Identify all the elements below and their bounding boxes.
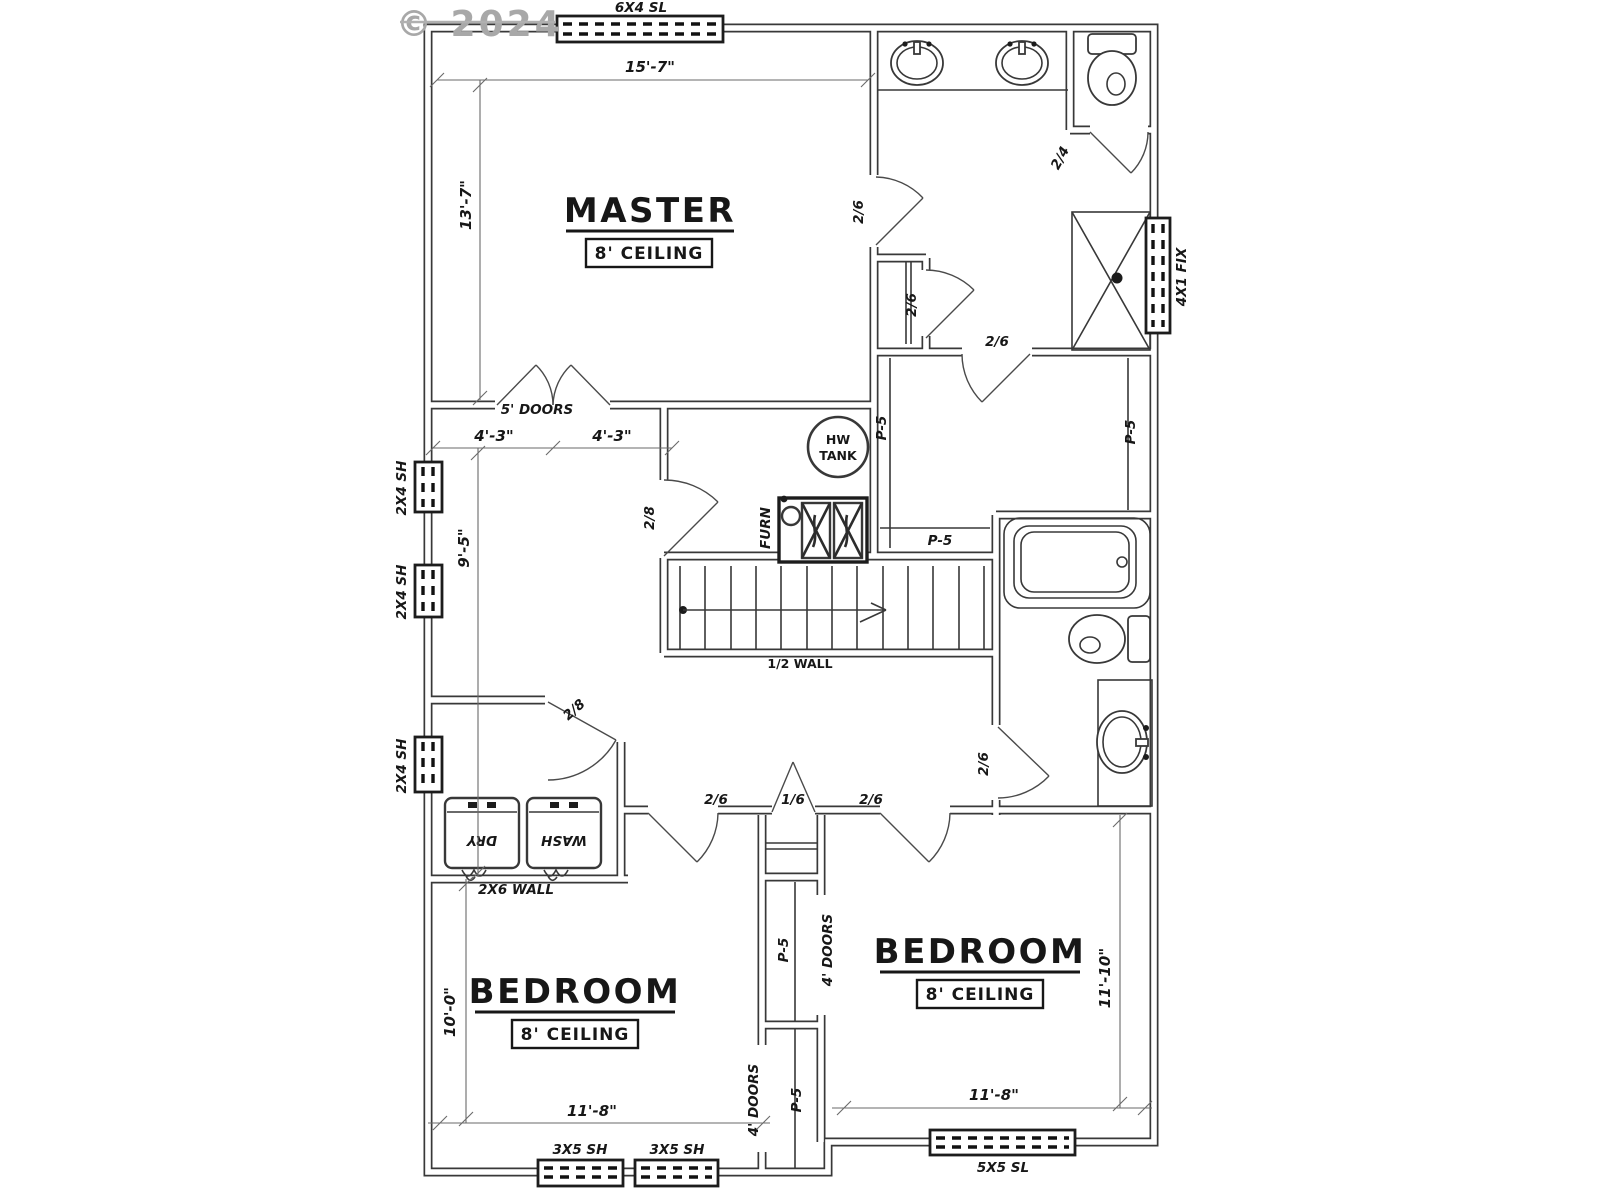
ceiling-note: 8' CEILING — [521, 1025, 630, 1045]
door-label-bedroom1: 2/6 — [704, 792, 728, 808]
dim-hall-height: 9'-5" — [455, 528, 473, 568]
window-left-sh3: 2X4 SH — [394, 737, 442, 793]
window-label: 6X4 SL — [615, 0, 667, 16]
window-left-sh2: 2X4 SH — [394, 564, 442, 620]
dim-hall-a: 4'-3" — [473, 427, 514, 445]
door-label-mech: 2/8 — [642, 506, 658, 530]
furnace — [779, 496, 867, 562]
dryer: DRY — [445, 798, 519, 880]
window-label: 2X4 SH — [394, 564, 410, 620]
toilet-bowl — [1088, 51, 1136, 105]
faucet-icon — [914, 42, 920, 54]
copyright-watermark: © 2024 — [396, 4, 563, 45]
window-label: 2X4 SH — [394, 460, 410, 516]
dim-master-width: 15'-7" — [625, 58, 675, 76]
door-label-bedroom2: 2/6 — [859, 792, 883, 808]
toilet-tank — [1128, 616, 1150, 662]
door-label-master-french: 5' DOORS — [501, 402, 574, 418]
room-name: BEDROOM — [469, 972, 682, 1012]
dim-bed2-width: 11'-8" — [969, 1086, 1019, 1104]
paper-background — [0, 0, 1600, 1200]
bath2-toilet — [1069, 615, 1150, 663]
dim-master-height: 13'-7" — [457, 180, 475, 230]
ceiling-note: 8' CEILING — [595, 244, 704, 264]
washer-label: WASH — [540, 832, 587, 848]
hw-tank: HW TANK — [808, 417, 868, 477]
ceiling-note: 8' CEILING — [926, 985, 1035, 1005]
hw-tank-label-1: HW — [826, 432, 850, 447]
watermark-text: © 2024 — [396, 4, 563, 45]
floor-plan-page: 1/2 WALL HW TANK — [0, 0, 1600, 1200]
window-left-sh1: 2X4 SH — [394, 460, 442, 516]
window-label: 3X5 SH — [553, 1142, 609, 1158]
window-label: 4X1 FIX — [1174, 247, 1190, 307]
floor-plan: 1/2 WALL HW TANK — [0, 0, 1600, 1200]
dim-bed1-height: 10'-0" — [441, 987, 459, 1037]
half-wall-label: 1/2 WALL — [767, 656, 832, 671]
pole-shelf-closet-upper: P-5 — [776, 938, 792, 963]
dryer-label: DRY — [466, 832, 497, 848]
door-label-bath2: 2/6 — [976, 752, 992, 776]
furnace-label: FURN — [758, 506, 774, 549]
master-room-title: MASTER 8' CEILING — [564, 191, 736, 267]
furnace-pipe-icon — [782, 507, 800, 525]
washer: WASH — [527, 798, 601, 880]
door-label-master-closet: 2/6 — [904, 293, 920, 317]
dim-bed2-height: 11'-10" — [1096, 948, 1114, 1008]
pole-shelf-closet-lower: P-5 — [789, 1088, 805, 1113]
pole-shelf-wic-back: P-5 — [928, 533, 953, 549]
door-label-closet-bed1: 4' DOORS — [746, 1064, 762, 1138]
toilet-room-toilet — [1088, 34, 1136, 105]
hw-tank-label-2: TANK — [819, 448, 858, 463]
shower-head-icon — [1112, 273, 1123, 284]
dim-hall-b: 4'-3" — [591, 427, 632, 445]
door-label-closet-bed2: 4' DOORS — [820, 914, 836, 988]
door-label-linen: 1/6 — [781, 792, 805, 808]
door-label-wic: 2/6 — [985, 334, 1009, 350]
room-name: MASTER — [564, 191, 736, 231]
window-label: 2X4 SH — [394, 738, 410, 794]
pole-shelf-wic-right: P-5 — [1123, 420, 1139, 445]
faucet-icon — [1019, 42, 1025, 54]
wall-2x6-label: 2X6 WALL — [478, 882, 554, 898]
pole-shelf-wic-left: P-5 — [874, 416, 890, 441]
faucet-icon — [1136, 739, 1148, 746]
door-label-master-bath: 2/6 — [851, 200, 867, 224]
room-name: BEDROOM — [874, 932, 1087, 972]
dim-bed1-width: 11'-8" — [567, 1102, 617, 1120]
window-label: 3X5 SH — [650, 1142, 706, 1158]
window-label: 5X5 SL — [977, 1160, 1029, 1176]
